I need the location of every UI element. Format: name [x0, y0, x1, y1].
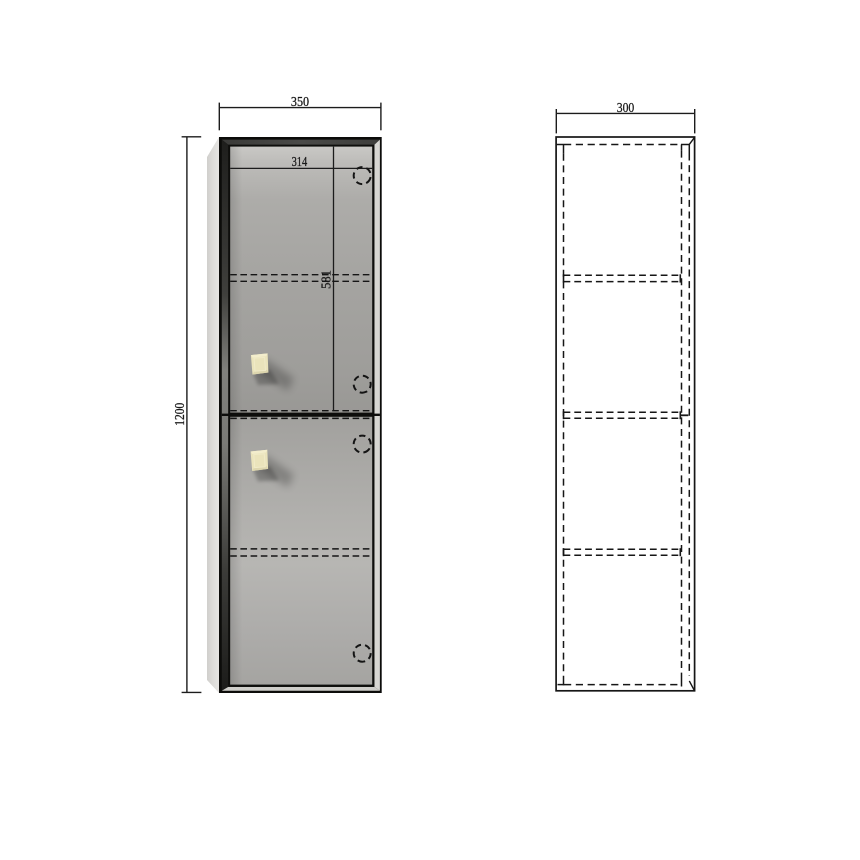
svg-text:1200: 1200	[172, 402, 187, 425]
svg-text:581: 581	[318, 270, 333, 289]
svg-text:350: 350	[291, 94, 309, 109]
svg-text:300: 300	[617, 100, 635, 115]
svg-text:314: 314	[292, 154, 308, 169]
